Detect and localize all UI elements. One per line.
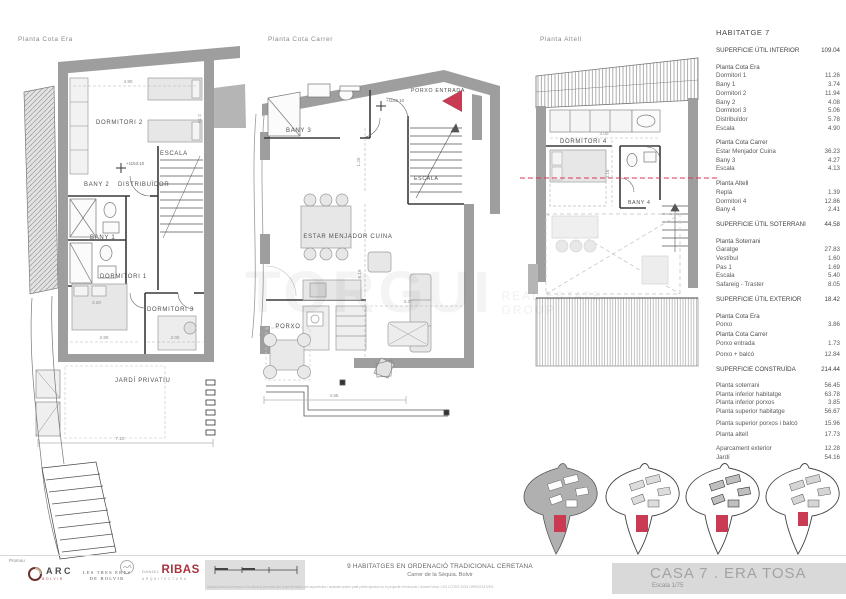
- row-label: Bany 1: [716, 81, 735, 90]
- table-rows: SUPERFICIE ÚTIL INTERIOR109.04Planta Cot…: [716, 47, 840, 462]
- table-total-row: SUPERFICIE CONSTRUÏDA214.44: [716, 366, 840, 375]
- table-total-row: SUPERFICIE ÚTIL INTERIOR109.04: [716, 47, 840, 56]
- arc-logo-icon: [28, 567, 42, 581]
- row-label: SUPERFICIE CONSTRUÏDA: [716, 366, 796, 375]
- row-value: 12.86: [825, 198, 840, 207]
- row-label: Replà: [716, 189, 732, 198]
- row-label: Distribuïdor: [716, 116, 748, 125]
- row-value: 36.23: [825, 148, 840, 157]
- svg-text:4.90: 4.90: [124, 79, 133, 84]
- svg-text:2.00: 2.00: [171, 335, 180, 340]
- table-row: Porxo + balcó12.84: [716, 351, 840, 360]
- table-row: Dormitori 111.26: [716, 72, 840, 81]
- dining-table: [301, 194, 351, 260]
- table-gap: [716, 232, 840, 237]
- row-value: 15.96: [825, 420, 840, 429]
- row-value: 214.44: [821, 366, 840, 375]
- row-label: Escala: [716, 125, 735, 134]
- row-value: 27.83: [825, 246, 840, 255]
- svg-text:2.80: 2.80: [100, 335, 109, 340]
- stairs: [160, 156, 203, 238]
- row-label: Pas 1: [716, 264, 732, 273]
- row-label: Planta superior porxos i balcó: [716, 420, 798, 429]
- row-label: Dormitori 3: [716, 107, 746, 116]
- ribas-logo-subtext: ARQUITECTURA: [142, 577, 200, 581]
- closet: [550, 110, 660, 132]
- row-value: 63.78: [825, 391, 840, 400]
- row-value: 44.58: [825, 221, 840, 230]
- table-gap: [716, 307, 840, 312]
- row-label: Escala: [716, 272, 735, 281]
- project-title: 9 HABITATGES EN ORDENACIÓ TRADICIONAL CE…: [310, 563, 570, 578]
- table-row: Bany 13.74: [716, 81, 840, 90]
- sofa: [368, 252, 431, 352]
- row-value: 1.39: [828, 189, 840, 198]
- row-label: Porxo + balcó: [716, 351, 754, 360]
- table-section-header: Planta Cota Era: [716, 313, 840, 322]
- svg-text:4.55: 4.55: [330, 393, 339, 398]
- sheet-title: CASA 7 . ERA TOSA: [650, 565, 846, 582]
- svg-text:3.00: 3.00: [600, 131, 609, 136]
- svg-text:3.16: 3.16: [605, 169, 610, 178]
- surface-table: HABITATGE 7 SUPERFICIE ÚTIL INTERIOR109.…: [716, 28, 840, 462]
- row-value: 4.08: [828, 99, 840, 108]
- row-value: 8.05: [828, 281, 840, 290]
- table-row: Escala5.40: [716, 272, 840, 281]
- table-row: Bany 24.08: [716, 99, 840, 108]
- row-value: 4.90: [828, 125, 840, 134]
- table-row: Jardí54.16: [716, 454, 840, 463]
- promoter-label: Promou: [9, 558, 25, 563]
- room-label: DORMITORI 3: [147, 307, 194, 313]
- table-total-row: SUPERFICIE ÚTIL SOTERRANI44.58: [716, 221, 840, 230]
- balcony-edge: [266, 380, 449, 416]
- project-address: Carrer de la Sèquia. Bolvir: [310, 572, 570, 578]
- arc-logo-text: ARC: [46, 567, 73, 576]
- site-key-plan: [686, 464, 759, 555]
- bathroom-fixtures: [268, 84, 360, 136]
- table-row: Planta soterrani56.45: [716, 382, 840, 391]
- level-marker: +1153.10: [116, 161, 145, 173]
- stamp-icon: [119, 559, 135, 575]
- plan-altell-drawing: 3.00 3.16 DORMITORI 4 BANY 4: [520, 28, 720, 508]
- table-row: Dormitori 35.06: [716, 107, 840, 116]
- table-section-header: Planta Altell: [716, 180, 840, 189]
- table-gap: [716, 174, 840, 179]
- table-row: Estar Menjador Cuina36.23: [716, 148, 840, 157]
- row-label: Safareig - Traster: [716, 281, 764, 290]
- table-total-row: SUPERFICIE ÚTIL EXTERIOR18.42: [716, 296, 840, 305]
- disclaimer-text: Aquest plànol correspon a la situació pr…: [207, 585, 639, 589]
- row-value: 2.41: [828, 206, 840, 215]
- table-row: Safareig - Traster8.05: [716, 281, 840, 290]
- room-label: BANY 4: [628, 200, 651, 206]
- closet: [70, 78, 88, 174]
- ribas-logo: DANIEL RIBAS ARQUITECTURA: [142, 565, 200, 581]
- row-value: 11.94: [825, 90, 840, 99]
- row-label: Porxo entrada: [716, 340, 755, 349]
- table-section-header: Planta Cota Carrer: [716, 139, 840, 148]
- table-row: Aparcament exterior12.28: [716, 445, 840, 454]
- room-label: BANY 2: [84, 182, 109, 188]
- table-row: Escala4.90: [716, 125, 840, 134]
- site-key-plan: [606, 464, 679, 555]
- title-block: Promou ARC BOLVIR LES TRES ERES DE BOLVI…: [0, 555, 846, 599]
- site-key-plans: [518, 460, 846, 560]
- table-title: HABITATGE 7: [716, 28, 840, 37]
- svg-text:2.79: 2.79: [197, 114, 202, 123]
- row-label: Garatge: [716, 246, 738, 255]
- row-label: Planta Cota Era: [716, 64, 760, 73]
- row-label: Dormitori 4: [716, 198, 746, 207]
- private-garden: [36, 366, 165, 438]
- row-label: Planta Cota Carrer: [716, 331, 768, 340]
- sheet-scale: Escala 1/75: [652, 583, 846, 589]
- svg-text:7.10: 7.10: [116, 436, 125, 441]
- room-label: ESCALA: [160, 151, 188, 157]
- table-row: Dormitori 412.86: [716, 198, 840, 207]
- row-value: 1.73: [828, 340, 840, 349]
- site-key-plan: [524, 464, 597, 555]
- table-row: Escala4.13: [716, 165, 840, 174]
- site-key-plan: [766, 464, 839, 555]
- ribas-logo-text: RIBAS: [161, 565, 199, 576]
- room-label: DISTRIBUÏDOR: [118, 181, 169, 188]
- row-label: Estar Menjador Cuina: [716, 148, 776, 157]
- arc-logo: ARC BOLVIR: [28, 567, 73, 581]
- row-value: 109.04: [821, 47, 840, 56]
- table-row: Bany 42.41: [716, 206, 840, 215]
- row-label: Dormitori 1: [716, 72, 746, 81]
- table-gap: [716, 215, 840, 220]
- row-value: 3.85: [828, 399, 840, 408]
- row-value: 17.73: [825, 431, 840, 440]
- row-value: 1.60: [828, 255, 840, 264]
- table-row: Distribuïdor5.78: [716, 116, 840, 125]
- room-label: ESTAR MENJADOR CUINA: [303, 234, 392, 240]
- row-value: 5.78: [828, 116, 840, 125]
- table-row: Planta superior habitatge56.67: [716, 408, 840, 417]
- svg-text:+1156.10: +1156.10: [386, 98, 405, 103]
- table-gap: [716, 360, 840, 365]
- row-label: Planta Cota Era: [716, 313, 760, 322]
- table-row: Garatge27.83: [716, 246, 840, 255]
- row-value: 11.26: [825, 72, 840, 81]
- room-label: PORXO: [275, 324, 300, 330]
- row-value: 4.27: [828, 157, 840, 166]
- row-label: Jardí: [716, 454, 730, 463]
- room-label: ESCALA: [414, 176, 439, 182]
- table-section-header: Planta Cota Era: [716, 64, 840, 73]
- row-value: 56.67: [825, 408, 840, 417]
- row-label: Planta Cota Carrer: [716, 139, 768, 148]
- table-gap: [716, 133, 840, 138]
- table-section-header: Planta Cota Carrer: [716, 331, 840, 340]
- stairs: [662, 204, 688, 252]
- bed: [72, 284, 127, 330]
- row-label: Planta altell: [716, 431, 748, 440]
- roof-hatch-bottom: [536, 298, 698, 366]
- row-label: Planta inferior porxos: [716, 399, 774, 408]
- level-marker: +1156.10: [376, 98, 405, 111]
- row-label: Escala: [716, 165, 735, 174]
- room-label: DORMITORI 1: [100, 274, 147, 280]
- room-label: PORXO ENTRADA: [411, 88, 465, 94]
- table-row: Porxo3.86: [716, 321, 840, 330]
- drawing-sheet: { "plans": { "era": { "title": "Planta C…: [0, 0, 846, 598]
- table-row: Planta altell17.73: [716, 431, 840, 440]
- row-label: Planta soterrani: [716, 382, 759, 391]
- table-row: Replà1.39: [716, 189, 840, 198]
- row-value: 3.86: [828, 321, 840, 330]
- svg-text:3.27: 3.27: [404, 299, 413, 304]
- row-label: Dormitori 2: [716, 90, 746, 99]
- row-value: 12.28: [825, 445, 840, 454]
- plan-cota-era-drawing: 4.90 2.79 3.20 2.80 2.00 7.10 +1153.10: [8, 28, 248, 560]
- svg-text:3.20: 3.20: [92, 300, 101, 305]
- kitchen-counter: [303, 280, 366, 350]
- table-row: Bany 34.27: [716, 157, 840, 166]
- row-value: 56.45: [825, 382, 840, 391]
- row-label: Planta Altell: [716, 180, 748, 189]
- row-label: Planta inferior habitatge: [716, 391, 781, 400]
- row-value: 1.69: [828, 264, 840, 273]
- desk: [158, 316, 196, 350]
- table-row: Planta superior porxos i balcó15.96: [716, 420, 840, 429]
- ribas-logo-pre: DANIEL: [142, 569, 159, 574]
- arc-logo-subtext: BOLVIR: [42, 577, 73, 581]
- table-row: Vestíbul1.60: [716, 255, 840, 264]
- bathroom-fixtures: [70, 199, 119, 237]
- stairs: [410, 124, 462, 198]
- double-height-void: [546, 214, 680, 294]
- row-label: Aparcament exterior: [716, 445, 772, 454]
- table-gap: [716, 58, 840, 63]
- row-label: Vestíbul: [716, 255, 738, 264]
- room-label: BANY 3: [286, 128, 311, 134]
- table-section-header: Planta Soterrani: [716, 238, 840, 247]
- roof-hatch-top: [536, 58, 698, 108]
- svg-text:+1153.10: +1153.10: [126, 161, 145, 166]
- room-label: BANY 1: [90, 235, 115, 241]
- row-label: Planta Soterrani: [716, 238, 760, 247]
- fence-posts: [206, 380, 215, 435]
- row-label: SUPERFICIE ÚTIL INTERIOR: [716, 47, 799, 56]
- table-row: Porxo entrada1.73: [716, 340, 840, 349]
- row-label: Planta superior habitatge: [716, 408, 785, 417]
- row-label: Bany 3: [716, 157, 735, 166]
- svg-text:1.20: 1.20: [356, 157, 361, 166]
- row-value: 5.06: [828, 107, 840, 116]
- row-label: Bany 4: [716, 206, 735, 215]
- table-gap: [716, 290, 840, 295]
- bed: [148, 78, 202, 142]
- bathroom-fixtures: [620, 147, 660, 192]
- project-title-line1: 9 HABITATGES EN ORDENACIÓ TRADICIONAL CE…: [310, 563, 570, 570]
- row-label: Bany 2: [716, 99, 735, 108]
- door-swings: [130, 176, 194, 309]
- table-row: Planta inferior porxos3.85: [716, 399, 840, 408]
- porch-table: [264, 328, 311, 380]
- sheet-title-band: CASA 7 . ERA TOSA Escala 1/75: [612, 563, 846, 594]
- room-label: JARDÍ PRIVATIU: [115, 377, 171, 384]
- row-value: 12.84: [825, 351, 840, 360]
- row-label: Porxo: [716, 321, 732, 330]
- table-row: Pas 11.69: [716, 264, 840, 273]
- row-value: 4.13: [828, 165, 840, 174]
- room-label: DORMITORI 4: [560, 139, 607, 145]
- row-value: 18.42: [825, 296, 840, 305]
- row-label: SUPERFICIE ÚTIL SOTERRANI: [716, 221, 806, 230]
- svg-text:6.19: 6.19: [357, 269, 362, 278]
- table-row: Dormitori 211.94: [716, 90, 840, 99]
- plan-cota-carrer-drawing: +1156.10: [248, 28, 508, 448]
- table-row: Planta inferior habitatge63.78: [716, 391, 840, 400]
- row-value: 5.40: [828, 272, 840, 281]
- row-value: 3.74: [828, 81, 840, 90]
- retaining-wall-hatch: [24, 86, 58, 294]
- row-label: SUPERFICIE ÚTIL EXTERIOR: [716, 296, 801, 305]
- row-value: 54.16: [825, 454, 840, 463]
- room-label: DORMITORI 2: [96, 120, 143, 126]
